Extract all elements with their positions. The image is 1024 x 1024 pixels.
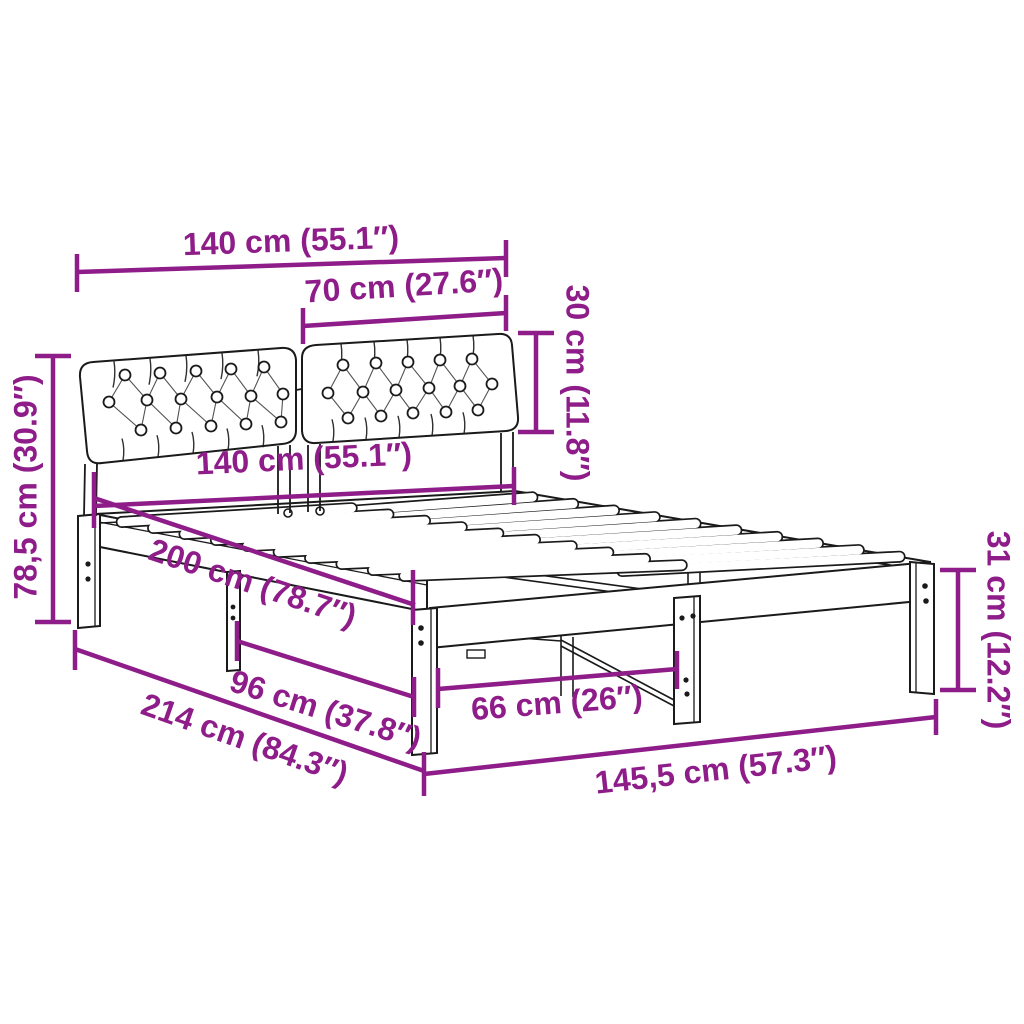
- dimension-label-headboard-width-top: 140 cm (55.1″): [182, 219, 399, 263]
- dim-cushion-height: [518, 333, 554, 432]
- dimension-label-total-width: 145,5 cm (57.3″): [593, 738, 839, 800]
- bed-dimension-drawing: 140 cm (55.1″) 70 cm (27.6″) 30 cm (11.8…: [0, 0, 1024, 1024]
- dimension-label-cushion-height: 30 cm (11.8″): [560, 285, 596, 482]
- product-dimension-diagram: 140 cm (55.1″) 70 cm (27.6″) 30 cm (11.8…: [0, 0, 1024, 1024]
- dim-leg-height: [940, 570, 976, 690]
- dimension-label-leg-height: 31 cm (12.2″): [981, 531, 1017, 730]
- dimension-label-headboard-height: 78,5 cm (30.9″): [7, 374, 43, 599]
- dimension-label-cushion-width: 70 cm (27.6″): [304, 261, 504, 309]
